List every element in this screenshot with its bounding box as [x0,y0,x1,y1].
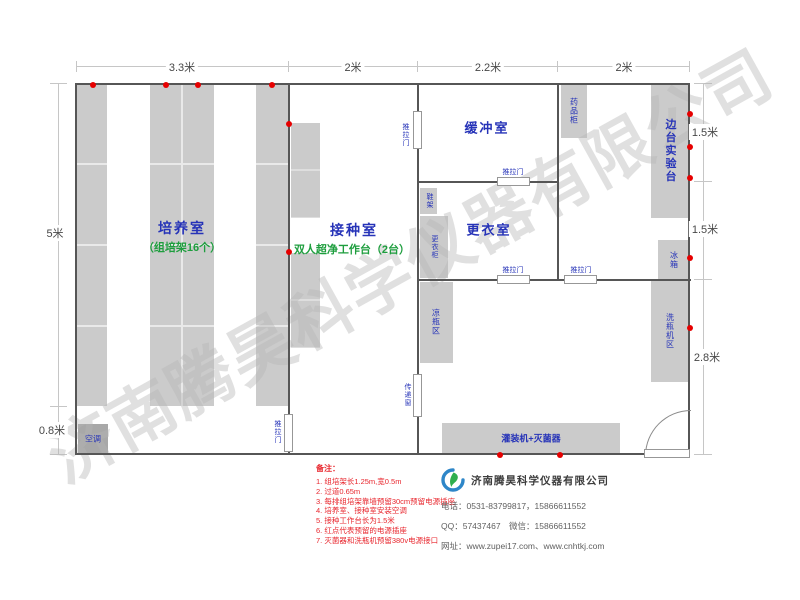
dim-top-1: 3.3米 [166,59,198,75]
dim-top-4: 2米 [612,59,635,75]
inoculation-room-label: 接种室 [330,220,378,240]
sliding-door-buffer [413,111,422,149]
dim-left-aisle: 0.8米 [36,422,68,438]
left-dimension-line [58,83,59,455]
dim-right-2: 1.5米 [689,221,721,237]
dim-tick [76,61,77,72]
power-dot [687,175,693,181]
fridge-label: 冰箱 [669,251,680,269]
power-dot [163,82,169,88]
power-dot [269,82,275,88]
dim-tick [694,279,712,280]
company-phone: 电话：0531-83799817，15866611552 [441,500,609,512]
notes-title: 备注： [316,463,455,474]
culture-room-sublabel: （组培架16个） [143,239,221,255]
medicine-cabinet-label: 药品柜 [569,98,580,125]
power-dot [687,325,693,331]
wall-buffer-changing [417,181,558,183]
sliding-door-label: 推拉门 [503,167,524,177]
transfer-window-label: 传递窗 [402,383,412,407]
air-conditioner-label: 空调 [85,434,101,445]
power-dot [195,82,201,88]
sliding-door-label: 推拉门 [272,420,282,444]
transfer-window [413,374,422,417]
entrance-door-leaf [644,449,690,458]
power-dot [286,249,292,255]
filling-sterilizer-label: 灌装机+灭菌器 [501,432,560,445]
power-dot [687,255,693,261]
inoculation-room-sublabel: 双人超净工作台（2台） [294,241,410,257]
side-bench-label: 边台实验台 [662,119,678,184]
company-logo-icon [441,468,465,492]
cooling-area-label: 凉瓶区 [431,309,442,336]
note-item-4: 4. 培养室、接种室安装空调 [316,506,455,516]
wall-changing-prep [417,279,691,281]
wall-culture-inoculation [288,83,290,455]
dim-tick [694,454,712,455]
changing-room-label: 更衣室 [466,220,511,239]
dim-top-3: 2.2米 [472,59,504,75]
note-item-2: 2. 过道0.65m [316,487,455,497]
dim-tick [689,61,690,72]
dim-tick [557,61,558,72]
wardrobe-label: 更衣柜 [429,235,439,259]
sliding-door-prep-left [497,275,530,284]
note-item-5: 5. 接种工作台长为1.5米 [316,516,455,526]
power-dot [687,144,693,150]
outer-wall [75,83,690,455]
power-dot [687,111,693,117]
company-qq-wechat: QQ：57437467 微信：15866611552 [441,520,609,532]
buffer-room-label: 缓冲室 [464,118,509,137]
power-dot [286,121,292,127]
sliding-door-label: 推拉门 [571,265,592,275]
sliding-door-culture [284,414,293,452]
shoe-rack-label: 鞋架 [424,193,434,209]
note-item-1: 1. 组培架长1.25m,宽0.5m [316,477,455,487]
dim-right-1: 1.5米 [689,124,721,140]
company-website: 网址：www.zupei17.com、www.cnhtkj.com [441,540,609,552]
dim-left-main: 5米 [43,225,66,241]
floor-plan-page: 济南腾昊科学仪器有限公司 3.3米 2米 2.2米 2米 5米 0.8米 1.5… [0,0,800,600]
dim-tick [50,83,67,84]
dim-tick [417,61,418,72]
power-dot [497,452,503,458]
sliding-door-prep-right [564,275,597,284]
dim-tick [694,181,712,182]
power-dot [557,452,563,458]
note-item-6: 6. 红点代表预留的电源插座 [316,526,455,536]
note-item-7: 7. 灭菌器和洗瓶机预留380v电源接口 [316,536,455,546]
company-name: 济南腾昊科学仪器有限公司 [471,473,609,488]
dim-tick [288,61,289,72]
note-item-3: 3. 每排组培架靠墙预留30cm预留电源插座 [316,497,455,507]
sliding-door-label: 推拉门 [400,123,410,147]
dim-tick [50,406,67,407]
company-block: 济南腾昊科学仪器有限公司 电话：0531-83799817，1586661155… [441,468,609,552]
notes-block: 备注： 1. 组培架长1.25m,宽0.5m 2. 过道0.65m 3. 每排组… [316,463,455,546]
dim-right-3: 2.8米 [691,349,723,365]
sliding-door-label: 推拉门 [503,265,524,275]
dim-tick [694,83,712,84]
culture-room-label: 培养室 [158,218,206,238]
sliding-door-changing [497,177,530,186]
dim-tick [50,454,67,455]
washing-area-label: 洗瓶机区 [665,313,676,349]
power-dot [90,82,96,88]
dim-top-2: 2米 [341,59,364,75]
